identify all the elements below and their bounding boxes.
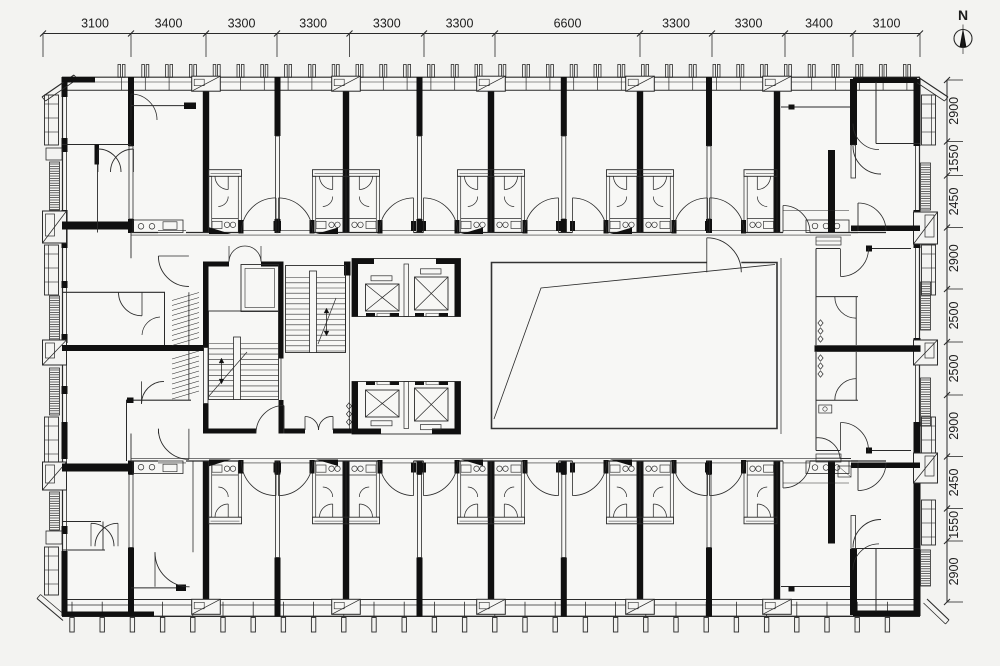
svg-text:2450: 2450 (947, 469, 961, 497)
svg-text:3300: 3300 (373, 17, 401, 31)
svg-text:2900: 2900 (947, 244, 961, 272)
svg-text:2450: 2450 (947, 188, 961, 216)
svg-text:3300: 3300 (662, 17, 690, 31)
svg-text:2900: 2900 (947, 412, 961, 440)
svg-text:3400: 3400 (805, 17, 833, 31)
svg-text:3300: 3300 (446, 17, 474, 31)
svg-text:2500: 2500 (947, 355, 961, 383)
svg-text:N: N (958, 7, 968, 23)
svg-text:3400: 3400 (155, 17, 183, 31)
svg-text:3100: 3100 (873, 17, 901, 31)
svg-text:2500: 2500 (947, 302, 961, 330)
svg-text:3300: 3300 (735, 17, 763, 31)
svg-text:1550: 1550 (947, 145, 961, 173)
svg-text:6600: 6600 (554, 17, 582, 31)
svg-text:1550: 1550 (947, 511, 961, 539)
svg-text:2900: 2900 (947, 558, 961, 586)
svg-text:3300: 3300 (299, 17, 327, 31)
svg-text:3300: 3300 (228, 17, 256, 31)
svg-text:2900: 2900 (947, 97, 961, 125)
svg-text:3100: 3100 (81, 17, 109, 31)
